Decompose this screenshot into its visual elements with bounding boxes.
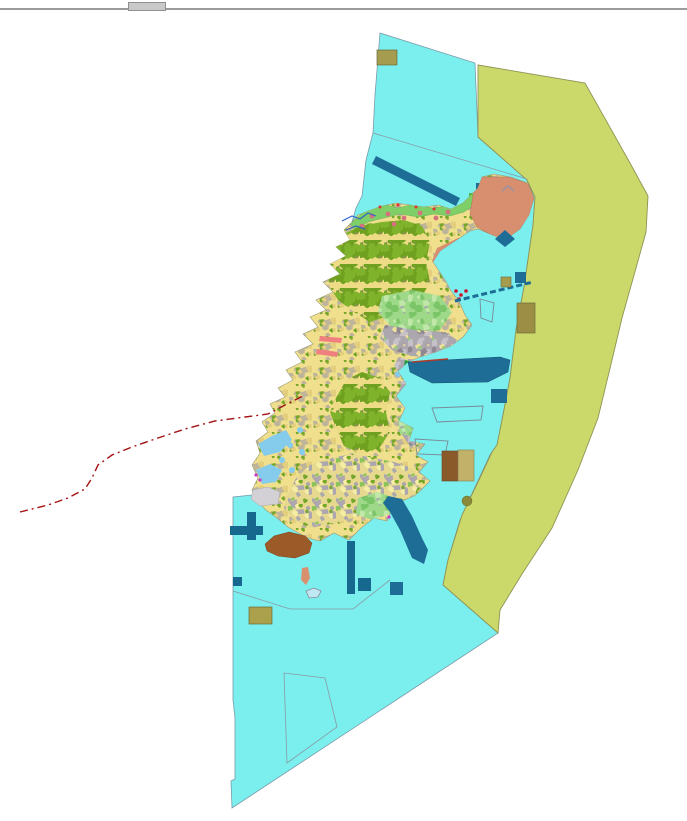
brown-rect-offshore <box>442 451 458 481</box>
khaki-square-north <box>377 50 397 65</box>
teal-square-sw-edge <box>233 577 242 586</box>
map-document <box>0 0 687 821</box>
teal-square-south-1 <box>358 578 371 591</box>
khaki-rect-offshore <box>458 450 474 481</box>
khaki-rect-bottom <box>249 607 272 624</box>
blue-square-se <box>491 389 507 403</box>
pier-vertical-sw <box>247 512 256 540</box>
teal-square-south-2 <box>390 582 403 595</box>
map-canvas[interactable] <box>0 0 687 821</box>
teal-bar-south <box>347 541 355 594</box>
pier-horizontal-sw <box>230 526 263 535</box>
khaki-square-ne-small <box>501 277 511 287</box>
khaki-rect-zone-edge <box>517 303 535 333</box>
blue-square-ne-small <box>515 272 526 283</box>
olive-dot-offshore <box>462 496 472 506</box>
